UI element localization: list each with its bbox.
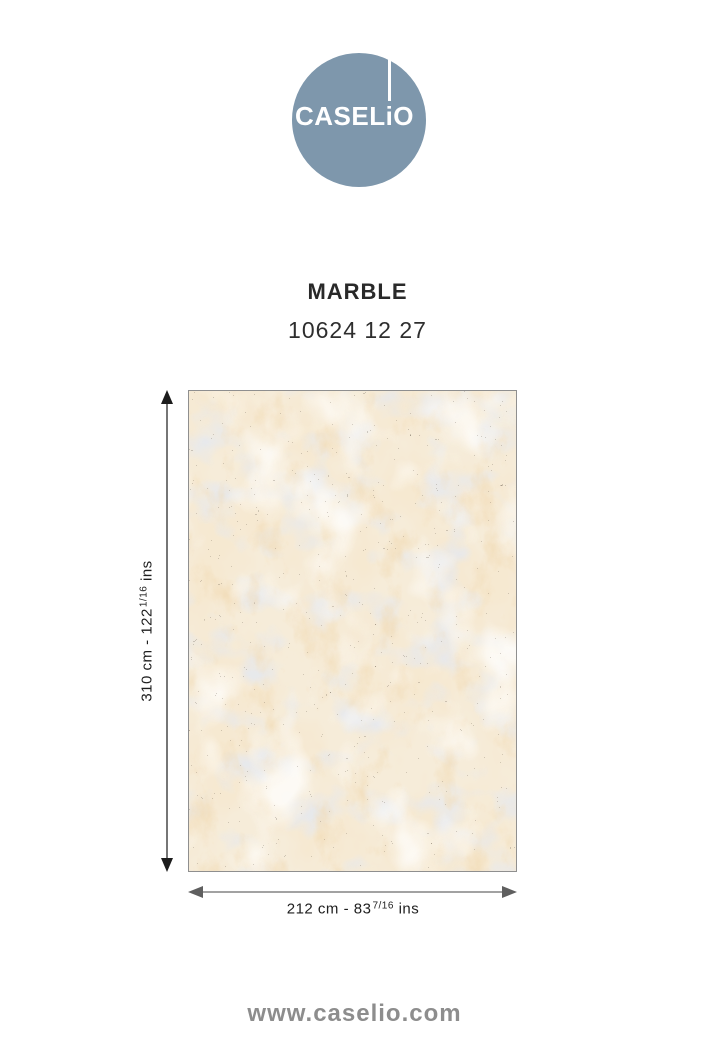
width-unit: ins [394, 901, 419, 918]
height-fraction: 1/16 [139, 586, 150, 607]
width-dimension-label: 212 cm - 837/16 ins [287, 901, 420, 918]
website-url: www.caselio.com [0, 1000, 709, 1028]
brand-wordmark: CASELiO [0, 103, 709, 129]
logo-i-bar-icon [388, 58, 391, 101]
height-unit: ins [139, 560, 156, 585]
width-dimension-arrow [188, 884, 517, 900]
width-fraction: 7/16 [372, 901, 393, 912]
product-reference: 10624 12 27 [0, 317, 709, 344]
height-dimension-label: 310 cm - 1221/16 ins [139, 560, 156, 701]
height-dimension-arrow [159, 390, 175, 872]
width-value: 212 cm - 83 [287, 901, 372, 918]
product-name: MARBLE [0, 279, 709, 305]
wallpaper-swatch [188, 390, 517, 872]
height-value: 310 cm - 122 [139, 608, 156, 702]
product-sheet: CASELiO MARBLE 10624 12 27 [0, 0, 709, 1063]
marble-texture-image [189, 391, 516, 871]
